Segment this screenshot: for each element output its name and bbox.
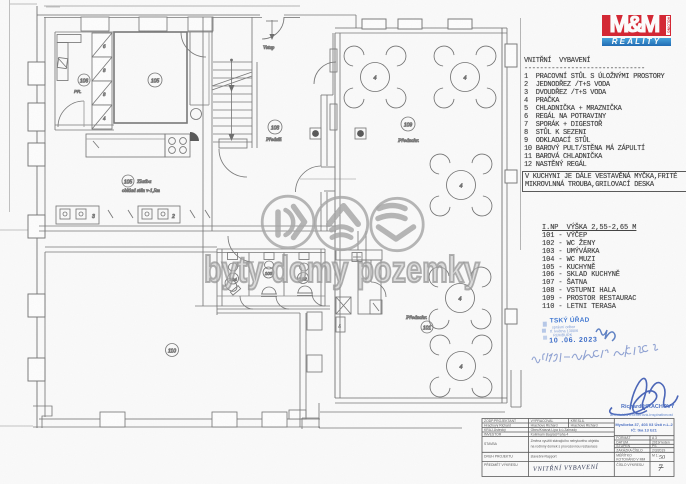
svg-text:Obec/Krásná Lípa k.ú.Zahrady: Obec/Krásná Lípa k.ú.Zahrady — [531, 428, 577, 432]
svg-text:STAVBA: STAVBA — [484, 442, 498, 446]
svg-text:IČ: tka 13 b21: IČ: tka 13 b21 — [631, 428, 658, 433]
svg-text:PŘEDMĚT VÝKRESU: PŘEDMĚT VÝKRESU — [484, 462, 518, 467]
svg-text:ZAKÁZKA ČÍSLO: ZAKÁZKA ČÍSLO — [616, 447, 643, 452]
svg-text:Kolínkam Bagrál,Praha 4: Kolínkam Bagrál,Praha 4 — [531, 432, 569, 436]
svg-text:M 1:: M 1: — [652, 454, 659, 458]
svg-text:DRUH PROJEKTU: DRUH PROJEKTU — [484, 455, 513, 459]
svg-text:7: 7 — [658, 463, 663, 473]
svg-text:ČÍSLO VÝKRESU: ČÍSLO VÝKRESU — [616, 462, 644, 467]
svg-text:KRAJ-Ústecký: KRAJ-Ústecký — [484, 427, 506, 432]
svg-text:ZODP.PROJEKTANT: ZODP.PROJEKTANT — [484, 419, 516, 423]
svg-text:A 3: A 3 — [652, 436, 657, 440]
svg-text:Hrachový Richard: Hrachový Richard — [484, 423, 511, 427]
svg-text:Hrachový Richard: Hrachový Richard — [571, 423, 598, 427]
svg-text:Změna využití stávajícího neby: Změna využití stávajícího nebytového obj… — [531, 439, 600, 443]
svg-text:Hrachový Richard: Hrachový Richard — [531, 423, 558, 427]
svg-text:KOTOVÁNO V MM: KOTOVÁNO V MM — [616, 458, 645, 462]
svg-text:INVESTOR: INVESTOR — [484, 432, 502, 436]
svg-text:2/3/2019: 2/3/2019 — [652, 448, 665, 452]
svg-text:Myslbeka 37, 403 03 Ústí n.L-2: Myslbeka 37, 403 03 Ústí n.L-2 — [615, 422, 673, 427]
svg-text:VNITŘNÍ VYBAVENÍ: VNITŘNÍ VYBAVENÍ — [533, 463, 599, 473]
svg-text:stavební-Rapport: stavební-Rapport — [531, 455, 557, 459]
svg-text:na rodinný domek s provozovnou: na rodinný domek s provozovnou restaurac… — [531, 445, 598, 449]
svg-text:KRESLIL: KRESLIL — [571, 419, 585, 423]
svg-text:FORMÁT: FORMÁT — [616, 436, 630, 440]
svg-text:VYPRACOVAL: VYPRACOVAL — [531, 419, 554, 423]
svg-text:50: 50 — [659, 455, 665, 461]
